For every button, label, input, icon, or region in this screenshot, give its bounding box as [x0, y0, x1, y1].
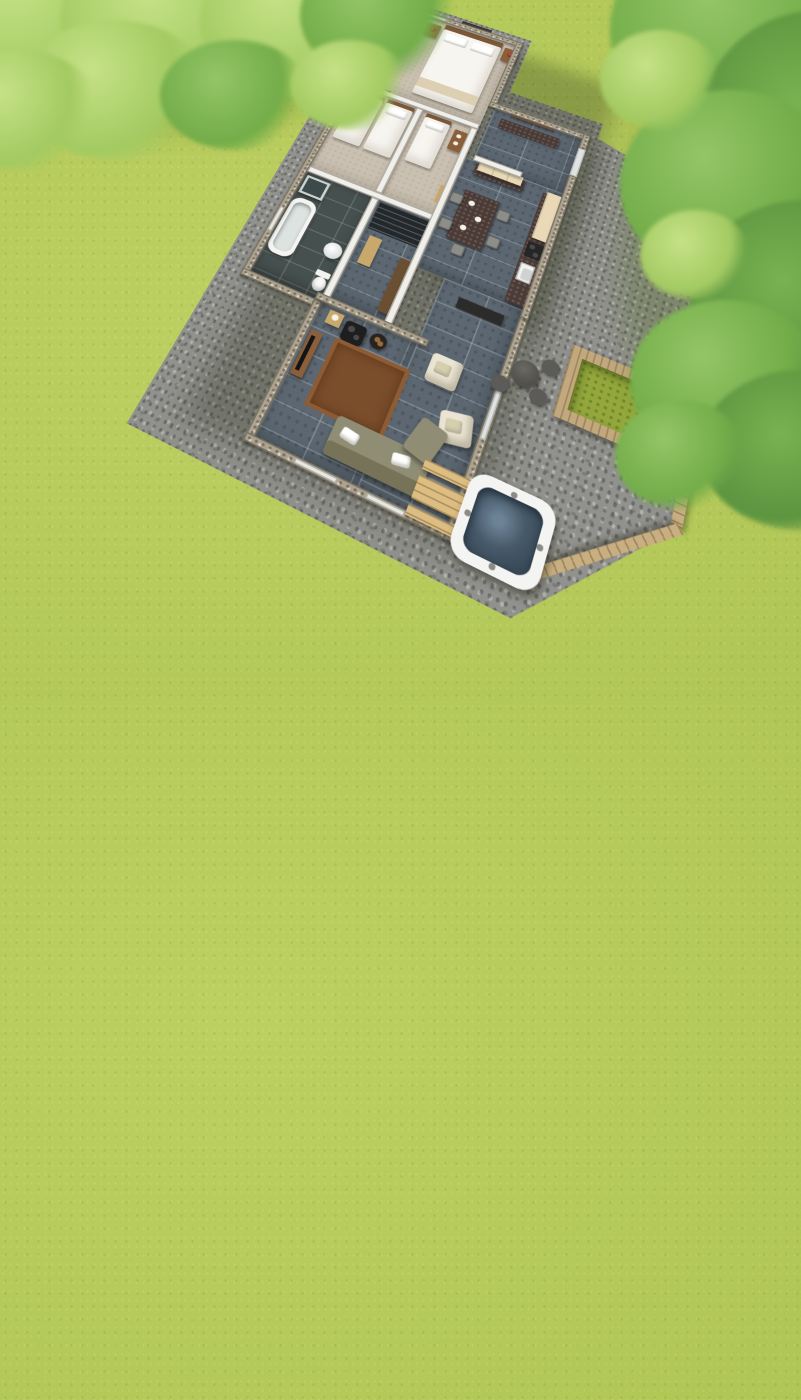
vegetation-layer: [0, 0, 801, 700]
rendered-floorplan-scene: { "scene": { "title": "3D aerial renderi…: [0, 0, 801, 700]
